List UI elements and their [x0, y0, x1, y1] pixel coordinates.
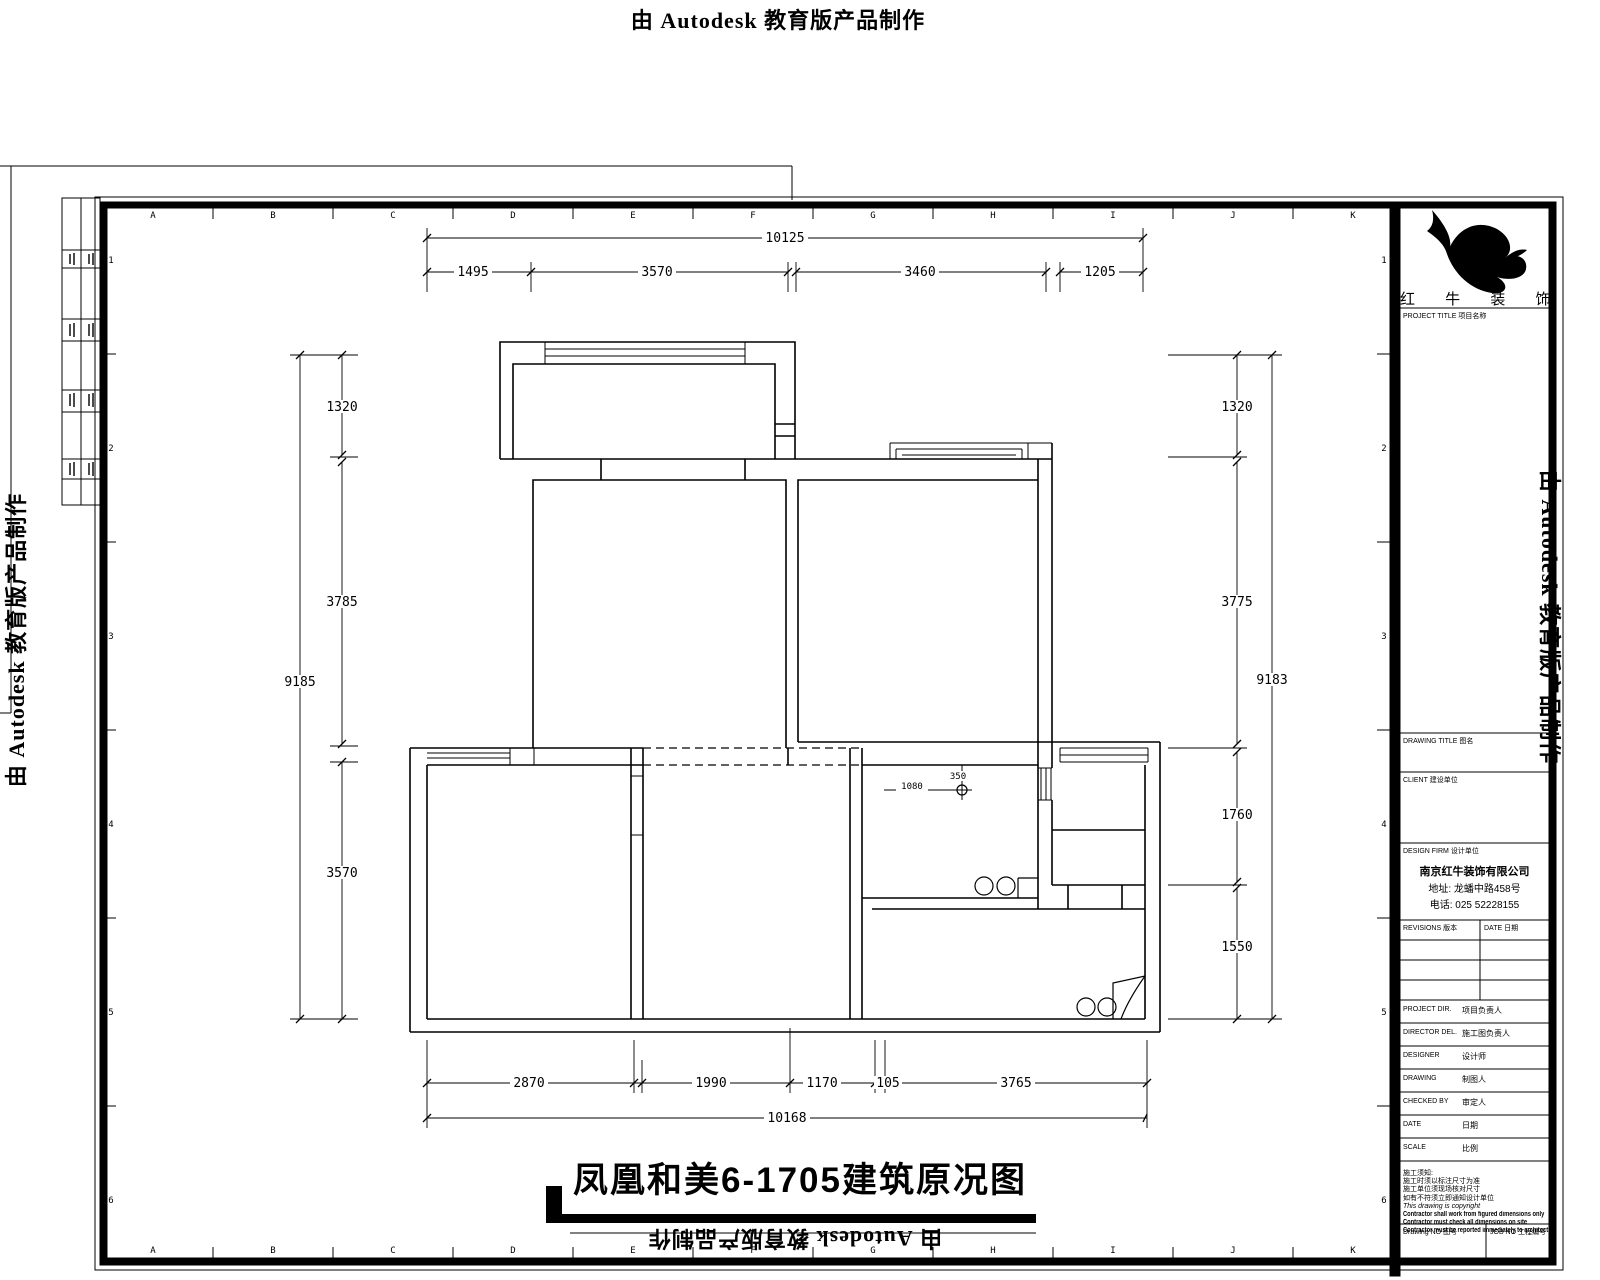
svg-text:D: D — [510, 211, 515, 221]
svg-text:J: J — [1230, 211, 1235, 221]
designer-label: DESIGNER — [1403, 1052, 1440, 1059]
note-line: 施工须知: — [1403, 1170, 1584, 1178]
svg-text:1760: 1760 — [1221, 808, 1252, 823]
svg-text:I: I — [1110, 1246, 1115, 1256]
job-no-label: JOB NO 工程编号 — [1490, 1227, 1546, 1237]
svg-text:G: G — [870, 1246, 875, 1256]
scale-cn: 比例 — [1462, 1143, 1478, 1154]
cad-sheet: { "watermark": { "text": "由 Autodesk 教育版… — [0, 0, 1600, 1280]
svg-text:3: 3 — [108, 632, 113, 642]
checked-by-label: CHECKED BY — [1403, 1098, 1449, 1105]
svg-text:E: E — [630, 1246, 635, 1256]
note-line: 施工单位须现场核对尺寸 — [1403, 1186, 1584, 1194]
svg-text:1080: 1080 — [901, 782, 923, 792]
svg-text:A: A — [150, 1246, 156, 1256]
layout-edge-lines — [0, 166, 792, 713]
svg-text:H: H — [990, 1246, 995, 1256]
svg-text:F: F — [750, 211, 755, 221]
svg-text:3765: 3765 — [1000, 1076, 1031, 1091]
note-line: This drawing is copyright — [1403, 1203, 1584, 1211]
svg-text:10125: 10125 — [765, 231, 804, 246]
svg-text:K: K — [1350, 1246, 1356, 1256]
svg-text:3775: 3775 — [1221, 595, 1252, 610]
svg-text:I: I — [1110, 211, 1115, 221]
grid-numbers-left: 12 34 56 — [108, 256, 113, 1206]
drawing-canvas: AB CD EF GH IJ K AB CD EF GH IJ K 12 34 … — [0, 0, 1600, 1280]
drawing-no-label: Drawing NO 图号 — [1403, 1227, 1457, 1237]
svg-text:J: J — [1230, 1246, 1235, 1256]
scale-label: SCALE — [1403, 1144, 1426, 1151]
project-dir-cn: 项目负责人 — [1462, 1005, 1502, 1016]
grid-ticks — [102, 208, 1391, 1258]
grid-letters-bottom: AB CD EF GH IJ K — [150, 1246, 1356, 1256]
project-title-label: PROJECT TITLE 项目名称 — [1403, 311, 1486, 321]
svg-text:1: 1 — [108, 256, 113, 266]
drawing-title-label: DRAWING TITLE 图名 — [1403, 736, 1473, 746]
note-line: Contractor shall work from figured dimen… — [1403, 1211, 1551, 1219]
svg-text:K: K — [1350, 211, 1356, 221]
project-dir-label: PROJECT DIR. — [1403, 1006, 1452, 1013]
svg-text:F: F — [750, 1246, 755, 1256]
svg-text:2870: 2870 — [513, 1076, 544, 1091]
date-col-label: DATE 日期 — [1484, 923, 1518, 933]
floorplan-walls — [410, 342, 1160, 1032]
svg-text:G: G — [870, 211, 875, 221]
margin-strip-table — [62, 198, 100, 505]
svg-text:1495: 1495 — [457, 265, 488, 280]
svg-text:4: 4 — [108, 820, 113, 830]
notes-block: 施工须知: 施工时须以标注尺寸为准 施工单位须现场核对尺寸 如有不符须立即通知设… — [1403, 1170, 1584, 1236]
svg-text:350: 350 — [950, 772, 966, 782]
plan-point-labels: 350 1080 — [896, 771, 972, 792]
svg-text:9183: 9183 — [1256, 673, 1287, 688]
svg-text:1170: 1170 — [806, 1076, 837, 1091]
kitchen-fixtures — [1077, 976, 1145, 1019]
svg-text:1320: 1320 — [326, 400, 357, 415]
sheet-border — [95, 197, 1563, 1276]
grid-letters-top: AB CD EF GH IJ K — [150, 211, 1356, 221]
svg-text:9185: 9185 — [284, 675, 315, 690]
director-del-label: DIRECTOR DEL. — [1403, 1029, 1457, 1036]
svg-text:5: 5 — [1381, 1008, 1386, 1018]
company-phone: 电话: 025 52228155 — [1400, 896, 1549, 911]
svg-text:1205: 1205 — [1084, 265, 1115, 280]
svg-text:105: 105 — [876, 1076, 899, 1091]
note-line: 如有不符须立即通知设计单位 — [1403, 1195, 1584, 1203]
svg-text:3570: 3570 — [326, 866, 357, 881]
client-label: CLIENT 建设单位 — [1403, 775, 1458, 785]
date-cn: 日期 — [1462, 1120, 1478, 1131]
svg-text:4: 4 — [1381, 820, 1386, 830]
grid-numbers-right: 12 34 56 — [1381, 256, 1386, 1206]
revisions-label: REVISIONS 版本 — [1403, 923, 1457, 933]
svg-text:1320: 1320 — [1221, 400, 1252, 415]
svg-text:1550: 1550 — [1221, 940, 1252, 955]
drawing-title: 凤凰和美6-1705建筑原况图 — [560, 1152, 1040, 1203]
svg-text:D: D — [510, 1246, 515, 1256]
design-firm-label: DESIGN FIRM 设计单位 — [1403, 846, 1479, 856]
checked-by-cn: 审定人 — [1462, 1097, 1486, 1108]
designer-cn: 设计师 — [1462, 1051, 1486, 1062]
svg-text:2: 2 — [108, 444, 113, 454]
drawing-cn: 制图人 — [1462, 1074, 1486, 1085]
svg-text:B: B — [270, 211, 275, 221]
svg-text:C: C — [390, 1246, 395, 1256]
svg-text:A: A — [150, 211, 156, 221]
company-name: 南京红牛装饰有限公司 — [1400, 863, 1549, 879]
director-del-cn: 施工图负责人 — [1462, 1028, 1510, 1039]
svg-text:5: 5 — [108, 1008, 113, 1018]
logo-text: 红 牛 装 饰 — [1400, 288, 1549, 309]
svg-text:10168: 10168 — [767, 1111, 806, 1126]
svg-text:1990: 1990 — [695, 1076, 726, 1091]
svg-text:6: 6 — [1381, 1196, 1386, 1206]
title-block: 红 牛 装 饰 PROJECT TITLE 项目名称 DRAWING TITLE… — [1400, 208, 1549, 1258]
svg-text:B: B — [270, 1246, 275, 1256]
svg-text:3460: 3460 — [904, 265, 935, 280]
svg-text:2: 2 — [1381, 444, 1386, 454]
svg-text:C: C — [390, 211, 395, 221]
svg-text:H: H — [990, 211, 995, 221]
company-address: 地址: 龙蟠中路458号 — [1400, 880, 1549, 895]
svg-text:3570: 3570 — [641, 265, 672, 280]
svg-text:6: 6 — [108, 1196, 113, 1206]
drawing-label: DRAWING — [1403, 1075, 1437, 1082]
date-label: DATE — [1403, 1121, 1421, 1128]
svg-text:3: 3 — [1381, 632, 1386, 642]
svg-text:3785: 3785 — [326, 595, 357, 610]
svg-text:E: E — [630, 211, 635, 221]
svg-text:1: 1 — [1381, 256, 1386, 266]
